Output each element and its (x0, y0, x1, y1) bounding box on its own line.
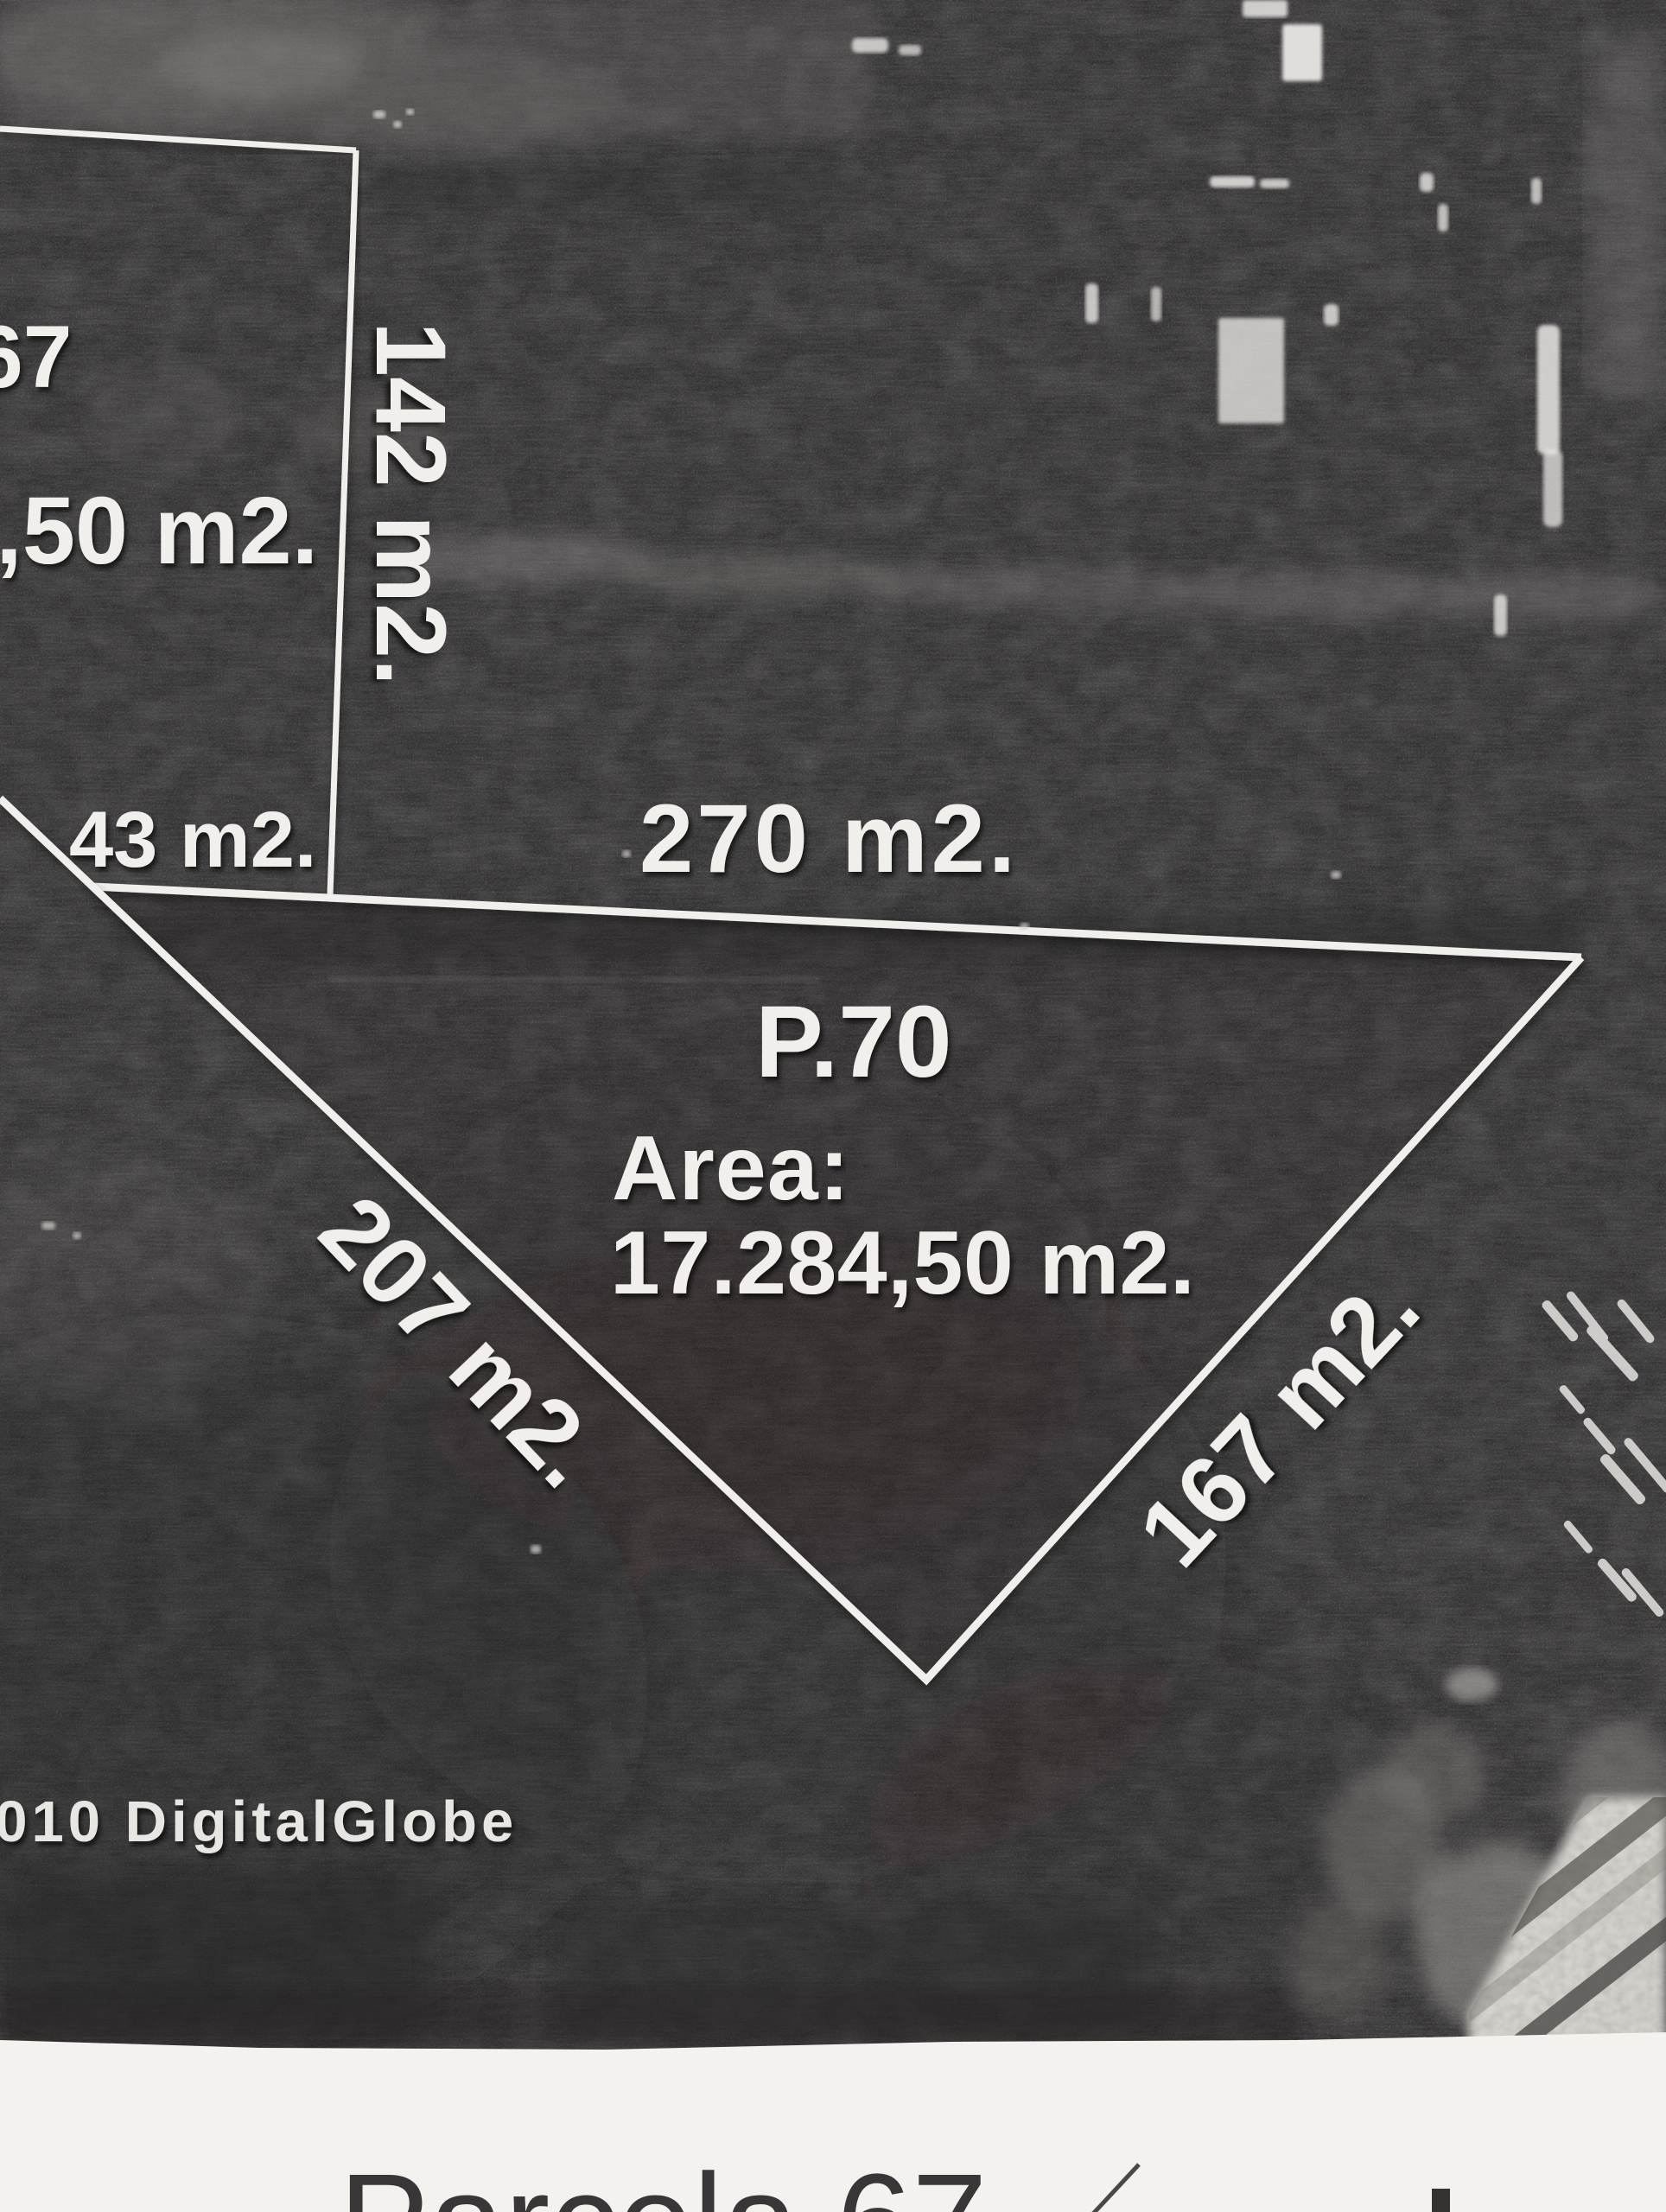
svg-text:43 m2.: 43 m2. (69, 796, 316, 884)
svg-text:67: 67 (0, 308, 72, 406)
svg-text:Area:: Area: (612, 1117, 850, 1219)
svg-text:Parcela 67: Parcela 67 (339, 2146, 988, 2212)
svg-text:2010 DigitalGlobe: 2010 DigitalGlobe (0, 1789, 518, 1854)
svg-text:142 m2.: 142 m2. (355, 321, 466, 686)
svg-text:5,50 m2.: 5,50 m2. (0, 478, 318, 584)
svg-text:P.70: P.70 (755, 985, 952, 1099)
svg-text:270 m2.: 270 m2. (639, 785, 1019, 893)
svg-text:17.284,50 m2.: 17.284,50 m2. (610, 1213, 1195, 1313)
